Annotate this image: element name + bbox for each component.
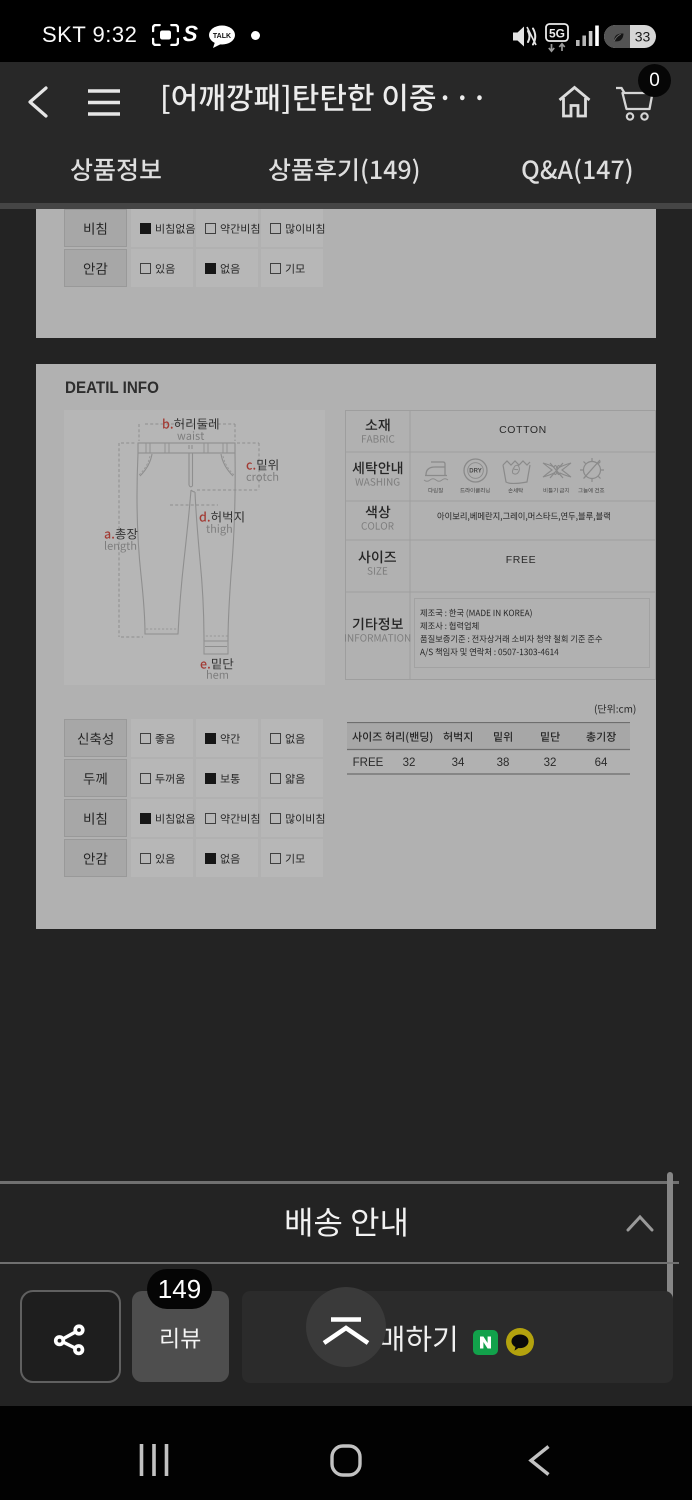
svg-text:TALK: TALK — [213, 33, 231, 40]
svg-text:5G: 5G — [549, 27, 565, 41]
svg-text:33: 33 — [635, 29, 651, 45]
svg-text:DRY: DRY — [469, 468, 481, 474]
